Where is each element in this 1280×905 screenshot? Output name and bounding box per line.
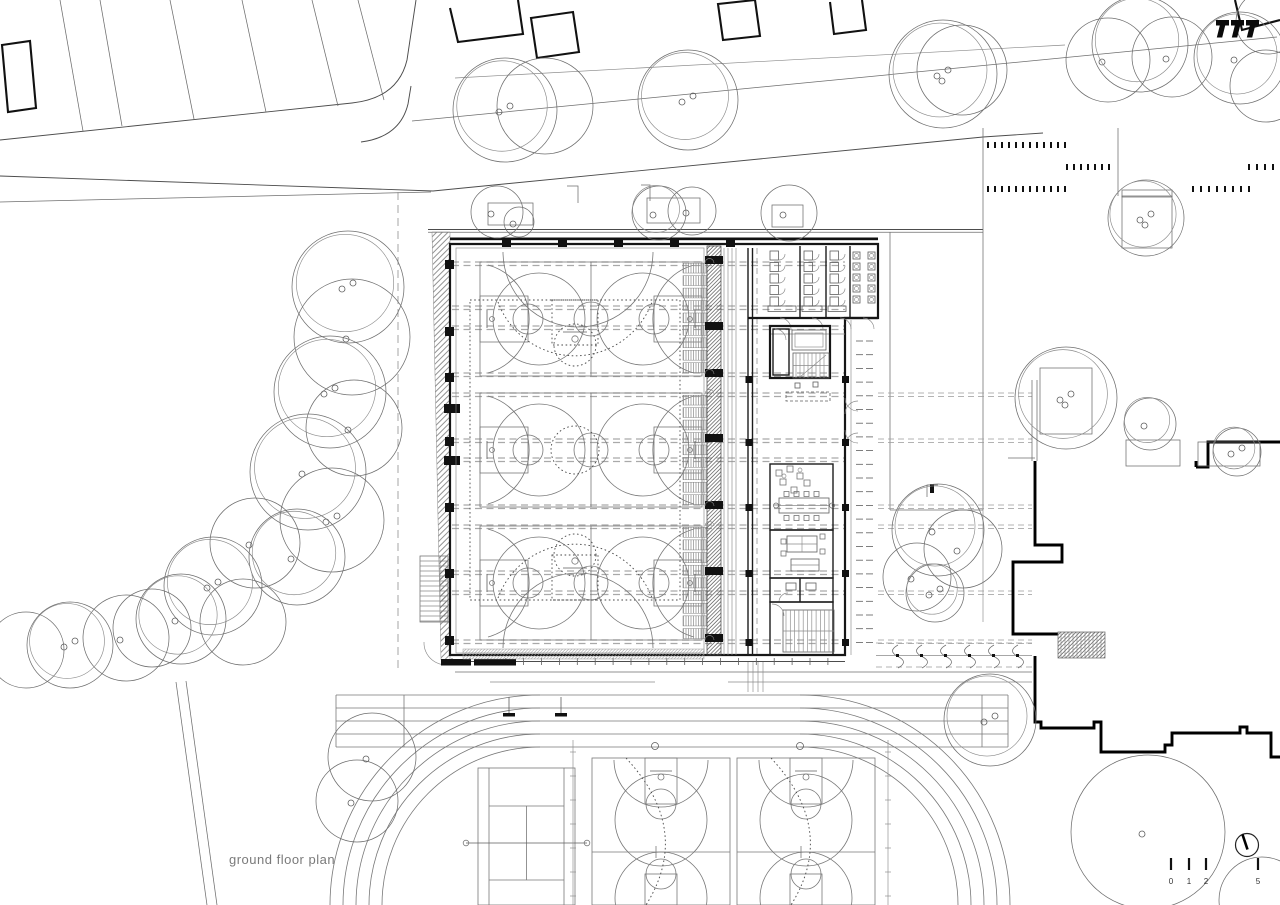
column xyxy=(705,434,723,442)
tree-trunk xyxy=(215,579,221,585)
parking-bay-divider xyxy=(170,0,194,119)
tree xyxy=(1108,180,1184,256)
sanitary-cubicle xyxy=(770,263,779,272)
bleacher-row xyxy=(683,540,707,550)
washbasin xyxy=(868,285,875,292)
bleacher-row xyxy=(683,578,707,588)
street-corner-kerb xyxy=(361,86,411,142)
tree-canopy xyxy=(497,58,593,154)
path-edge xyxy=(186,681,217,905)
logo-glyph xyxy=(1216,20,1229,38)
bleacher-row xyxy=(683,433,707,443)
chair xyxy=(804,492,809,497)
tree xyxy=(668,187,716,235)
tree-trunk xyxy=(954,548,960,554)
corner-mark xyxy=(641,185,650,201)
washbasin xyxy=(853,285,860,292)
stall-marker xyxy=(1043,186,1045,192)
tree-trunk xyxy=(117,637,123,643)
plot-front-line xyxy=(455,45,1065,78)
bleacher-row xyxy=(683,301,707,311)
tree-canopy xyxy=(164,537,262,635)
track-curve xyxy=(369,734,540,905)
bleacher-row xyxy=(683,395,707,405)
bike-rack-post xyxy=(992,654,995,657)
chair xyxy=(794,492,799,497)
tree xyxy=(1071,755,1225,905)
door-swing xyxy=(813,300,819,306)
drawing-title: ground floor plan xyxy=(229,852,335,867)
bench xyxy=(768,306,796,312)
chair xyxy=(814,516,819,521)
tree-trunk xyxy=(288,556,294,562)
street-kerb xyxy=(0,176,433,191)
column xyxy=(670,240,679,247)
wall-tick xyxy=(746,439,753,446)
bleacher-row xyxy=(683,603,707,613)
tree-trunk xyxy=(1099,59,1105,65)
track-curve xyxy=(382,747,540,905)
court-circle xyxy=(493,404,585,496)
chair xyxy=(780,479,786,485)
stall-marker xyxy=(1036,142,1038,148)
stall-marker xyxy=(1256,164,1258,170)
track-curve xyxy=(343,708,540,905)
tree-trunk xyxy=(510,221,516,227)
tree-canopy xyxy=(249,509,345,605)
tree-canopy xyxy=(200,579,286,665)
chair xyxy=(798,468,802,472)
column xyxy=(705,567,723,575)
door-swing xyxy=(839,300,845,306)
tree-canopy xyxy=(0,612,64,688)
sanitary-cubicle xyxy=(770,286,779,295)
tree xyxy=(892,484,984,576)
tree-canopy xyxy=(944,674,1036,766)
tree-trunk xyxy=(1137,217,1143,223)
tree xyxy=(328,713,416,801)
court-circle xyxy=(760,852,852,905)
stall-marker xyxy=(994,186,996,192)
tree xyxy=(210,498,300,588)
stall-marker xyxy=(1192,186,1194,192)
core-room xyxy=(773,329,789,375)
tree xyxy=(316,760,398,842)
tree-trunk xyxy=(1142,222,1148,228)
survey-mark xyxy=(930,484,934,493)
tree-canopy-inner xyxy=(255,418,356,519)
tree-canopy xyxy=(883,543,951,611)
stall-marker xyxy=(1036,186,1038,192)
sanitary-cubicle xyxy=(804,286,813,295)
house-outline xyxy=(450,0,523,42)
sanitary-cubicle xyxy=(830,274,839,283)
tree-trunk xyxy=(1228,451,1234,457)
bleacher-row xyxy=(683,325,707,335)
south-plinth xyxy=(474,659,516,666)
stall-marker xyxy=(1240,186,1242,192)
washbasin xyxy=(855,265,859,269)
sanitary-cubicle xyxy=(830,286,839,295)
tree xyxy=(1230,50,1280,122)
tree-canopy xyxy=(1066,18,1150,102)
tree-canopy xyxy=(136,574,226,664)
column xyxy=(705,322,723,330)
tree-canopy xyxy=(892,484,984,576)
wall-niche xyxy=(444,456,460,465)
tree-canopy xyxy=(906,564,964,622)
bleacher-row xyxy=(683,457,707,467)
wall-tick xyxy=(842,570,849,577)
tree xyxy=(249,509,345,605)
chair xyxy=(814,492,819,497)
stall-marker xyxy=(1029,142,1031,148)
column xyxy=(502,240,511,247)
tree-canopy xyxy=(1092,0,1188,92)
trees xyxy=(0,0,1280,905)
tree-canopy xyxy=(638,50,738,150)
door-swing xyxy=(813,277,819,283)
stall-marker xyxy=(1057,142,1059,148)
stall-marker xyxy=(1008,142,1010,148)
tree-trunk xyxy=(939,78,945,84)
chair xyxy=(820,549,825,554)
column xyxy=(445,569,454,578)
chair xyxy=(820,534,825,539)
tree xyxy=(83,595,169,681)
tree xyxy=(906,564,964,622)
south-plinth xyxy=(441,659,471,666)
three-point-arc xyxy=(614,760,708,807)
sanitary-cubicle xyxy=(830,263,839,272)
bike-rack-post xyxy=(896,654,899,657)
door-swing xyxy=(780,318,791,329)
tree-canopy xyxy=(306,380,402,476)
stall-marker xyxy=(1022,186,1024,192)
door-swing xyxy=(863,318,874,329)
chair xyxy=(781,551,786,556)
door-swing xyxy=(779,266,785,272)
tree-canopy xyxy=(210,498,300,588)
tree-trunk xyxy=(246,542,252,548)
washbasin xyxy=(853,274,860,281)
scale-label-1: 1 xyxy=(1187,877,1192,886)
stall-marker xyxy=(1008,186,1010,192)
tree xyxy=(1092,0,1188,92)
tree-planter xyxy=(1040,368,1092,434)
light-mast xyxy=(797,743,804,750)
tree-canopy-inner xyxy=(1213,427,1255,469)
tree xyxy=(638,50,738,150)
washbasin xyxy=(870,254,874,258)
door-swing xyxy=(779,254,785,260)
bleacher-row xyxy=(683,527,707,537)
tree xyxy=(1236,0,1280,54)
tree-canopy xyxy=(292,231,404,343)
door-swing xyxy=(813,254,819,260)
door-swing xyxy=(772,604,784,616)
tree xyxy=(306,380,402,476)
door-swing xyxy=(839,277,845,283)
column xyxy=(558,240,567,247)
annotations: ground floor plan 0 1 2 5 xyxy=(229,20,1261,886)
parking-bay-divider xyxy=(358,0,384,100)
start-post-base xyxy=(503,713,515,717)
washbasin xyxy=(868,296,875,303)
tree-canopy-inner xyxy=(296,234,393,331)
tree-canopy xyxy=(113,589,191,667)
bleacher-row xyxy=(683,553,707,563)
key xyxy=(645,874,677,905)
bleacher-row xyxy=(683,482,707,492)
stall-marker xyxy=(1264,164,1266,170)
bleacher-wall-strip xyxy=(707,246,721,655)
stall-marker xyxy=(1050,142,1052,148)
chair xyxy=(781,539,786,544)
tree-trunk xyxy=(1057,397,1063,403)
stall-marker xyxy=(1108,164,1110,170)
scale-label-5: 5 xyxy=(1256,877,1261,886)
stall-marker xyxy=(1043,142,1045,148)
washbasin xyxy=(870,276,874,280)
tree-trunk xyxy=(172,618,178,624)
wall-tick xyxy=(842,376,849,383)
washbasin xyxy=(853,252,860,259)
chair xyxy=(787,466,793,472)
tree-trunk xyxy=(780,212,786,218)
end-arc xyxy=(503,252,653,327)
washbasin xyxy=(853,263,860,270)
column xyxy=(445,373,454,382)
bleacher-row xyxy=(683,470,707,480)
chair xyxy=(794,516,799,521)
washbasin xyxy=(855,254,859,258)
key xyxy=(790,874,822,905)
end-arc xyxy=(503,573,653,648)
washbasin xyxy=(855,298,859,302)
tree-trunk xyxy=(334,513,340,519)
wall-tick xyxy=(746,570,753,577)
track-curve xyxy=(800,747,958,905)
stall-marker xyxy=(1272,164,1274,170)
stall-marker xyxy=(1022,142,1024,148)
tree xyxy=(1213,427,1261,476)
sanitary-cubicle xyxy=(804,274,813,283)
lift-car xyxy=(795,333,823,347)
tree-trunk xyxy=(679,99,685,105)
tree-trunk xyxy=(1239,445,1245,451)
tree-canopy xyxy=(761,185,817,241)
tree xyxy=(889,20,997,128)
tree-trunk xyxy=(507,103,513,109)
stall-marker xyxy=(987,186,989,192)
door-swing xyxy=(813,266,819,272)
tree-trunk xyxy=(339,286,345,292)
tree-canopy xyxy=(471,186,523,238)
tree xyxy=(280,468,384,572)
door-swing xyxy=(839,254,845,260)
tree xyxy=(883,543,951,611)
sanitary-cubicle xyxy=(830,297,839,306)
parking-bay-divider xyxy=(242,0,266,112)
tree-trunk xyxy=(1231,57,1237,63)
hoop xyxy=(490,317,495,322)
bike-rack-post xyxy=(968,654,971,657)
hoop xyxy=(572,558,578,564)
start-post-base xyxy=(555,713,567,717)
court-circle xyxy=(493,537,585,629)
washbasin xyxy=(868,263,875,270)
bleacher-row xyxy=(683,495,707,505)
drain-line xyxy=(626,758,665,905)
tree xyxy=(113,589,191,667)
bleacher-row xyxy=(683,363,707,373)
door-swing xyxy=(779,289,785,295)
house-outline xyxy=(718,0,760,40)
stall-marker xyxy=(1080,164,1082,170)
street-kerb xyxy=(0,0,416,140)
tree-trunk xyxy=(1163,56,1169,62)
stall-marker xyxy=(1224,186,1226,192)
tree-trunk xyxy=(1139,831,1145,837)
stall-marker xyxy=(1001,186,1003,192)
tree-canopy-inner xyxy=(457,61,547,151)
stall-marker xyxy=(1101,164,1103,170)
tree-trunk xyxy=(1148,211,1154,217)
tree-canopy-inner xyxy=(1095,0,1179,82)
stall-marker xyxy=(1064,186,1066,192)
tree-trunk xyxy=(1068,391,1074,397)
folding-door xyxy=(845,398,858,411)
hoop xyxy=(490,448,495,453)
tree xyxy=(0,612,64,688)
stall-marker xyxy=(987,142,989,148)
tree xyxy=(1124,397,1176,450)
streets-and-neighbour-houses xyxy=(0,0,1280,203)
tree xyxy=(200,579,286,665)
tree-canopy xyxy=(668,187,716,235)
tree-trunk xyxy=(72,638,78,644)
bleacher-row xyxy=(683,445,707,455)
tree-planter xyxy=(772,205,803,227)
stall-marker xyxy=(1066,164,1068,170)
bleacher-row xyxy=(683,288,707,298)
door-swing xyxy=(779,300,785,306)
tree-trunk xyxy=(348,800,354,806)
sanitary-cubicle xyxy=(804,263,813,272)
parking-bay-divider xyxy=(100,0,122,126)
door-swing xyxy=(839,289,845,295)
north-arrow-icon xyxy=(1236,834,1259,857)
washbasin xyxy=(868,252,875,259)
washbasin xyxy=(870,265,874,269)
outdoor-sports-field xyxy=(463,740,891,905)
bleacher-row xyxy=(683,313,707,323)
wall-niche xyxy=(444,404,460,413)
athletics-track xyxy=(330,695,1010,905)
tree xyxy=(471,186,523,238)
bike-rack-post xyxy=(920,654,923,657)
column xyxy=(705,634,723,642)
tree-trunk xyxy=(332,385,338,391)
tree-canopy xyxy=(889,20,997,128)
folding-door xyxy=(845,401,858,414)
stall-marker xyxy=(994,142,996,148)
door-swing xyxy=(779,277,785,283)
wall-tick xyxy=(842,504,849,511)
court-circle xyxy=(597,537,689,629)
door-swing xyxy=(839,266,845,272)
court-circle xyxy=(597,404,689,496)
hoop xyxy=(572,336,578,342)
tree xyxy=(944,674,1036,766)
stall-marker xyxy=(1087,164,1089,170)
existing-school-building xyxy=(1008,190,1280,757)
washbasin xyxy=(855,276,859,280)
sanitary-cubicle xyxy=(804,297,813,306)
reception-chair xyxy=(795,383,800,388)
column xyxy=(445,437,454,446)
parking-bay-divider xyxy=(60,0,83,131)
chair xyxy=(784,492,789,497)
tree-canopy xyxy=(1230,50,1280,122)
tree-trunk xyxy=(934,73,940,79)
scale-label-2: 2 xyxy=(1204,877,1209,886)
stall-marker xyxy=(1029,186,1031,192)
wall-tick xyxy=(746,376,753,383)
stall-marker xyxy=(1057,186,1059,192)
hoop xyxy=(490,581,495,586)
tree xyxy=(1066,18,1150,102)
tree-canopy-inner xyxy=(895,486,975,566)
tree xyxy=(761,185,817,241)
tree-canopy-inner xyxy=(1124,397,1169,442)
tree xyxy=(917,25,1007,115)
path-edge xyxy=(176,682,207,905)
court-circle xyxy=(493,273,585,365)
street-kerb xyxy=(433,133,1043,191)
scale-bar: 0 1 2 5 xyxy=(1169,858,1261,886)
bleacher-row xyxy=(683,629,707,639)
drain-line xyxy=(771,758,810,905)
tree xyxy=(292,231,404,343)
tree-trunk xyxy=(1062,402,1068,408)
tree-canopy-inner xyxy=(947,676,1027,756)
sanitary-cubicle xyxy=(770,274,779,283)
stall-marker xyxy=(1001,142,1003,148)
tree-trunk xyxy=(945,67,951,73)
tree-canopy xyxy=(917,25,1007,115)
tree-canopy xyxy=(294,279,410,395)
corner-mark xyxy=(567,186,578,203)
site-plan-drawing: ground floor plan 0 1 2 5 xyxy=(0,0,1280,905)
tree-trunk xyxy=(929,529,935,535)
door-swing xyxy=(775,329,786,340)
tree xyxy=(1132,17,1212,97)
tree-canopy-inner xyxy=(907,564,957,614)
key xyxy=(790,758,822,804)
parking-bay-divider xyxy=(312,0,338,106)
key xyxy=(645,758,677,804)
stall-marker xyxy=(1248,186,1250,192)
hoop xyxy=(803,774,809,780)
chair xyxy=(776,470,782,476)
tree-canopy xyxy=(1219,857,1280,905)
tree xyxy=(1219,857,1280,905)
washbasin xyxy=(855,287,859,291)
bleacher-row xyxy=(683,616,707,626)
stall-marker xyxy=(1232,186,1234,192)
